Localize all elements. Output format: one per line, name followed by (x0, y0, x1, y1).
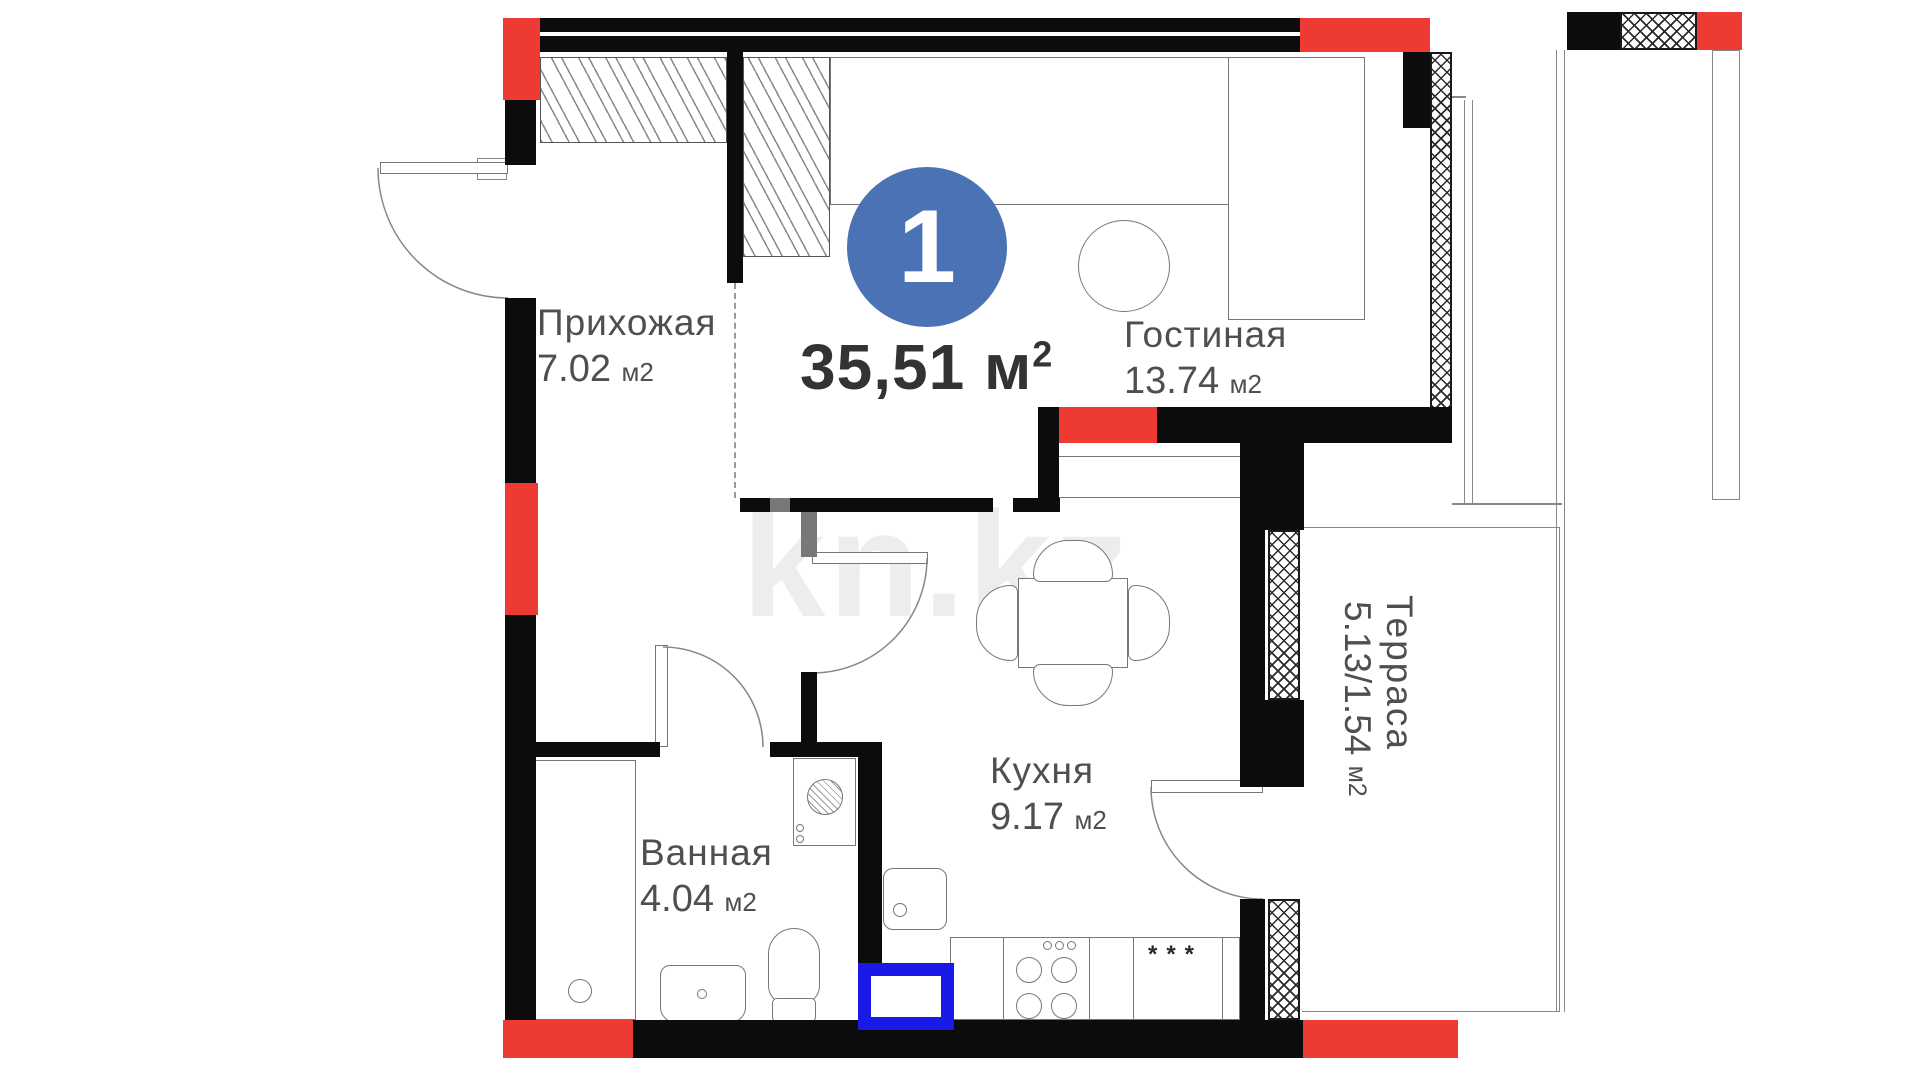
load-bearing-wall-red (503, 18, 540, 100)
window-hatch (1268, 530, 1300, 700)
room-label-bathroom: Ванная 4.04 м2 (640, 830, 773, 924)
load-bearing-wall-red (1059, 407, 1157, 443)
door-arc-terrace (1151, 787, 1263, 899)
wall-segment (505, 18, 1300, 32)
wall-segment (1403, 407, 1452, 443)
wall-segment (505, 298, 536, 483)
door-arc-bathroom (663, 647, 763, 747)
load-bearing-wall-red (503, 1020, 633, 1058)
door-arc-kitchen (812, 558, 927, 673)
wall-segment (540, 36, 1300, 52)
wall-segment (535, 742, 660, 757)
total-area: 35,51 м2 (800, 330, 1053, 404)
wall-segment-gray (770, 498, 790, 512)
apartment-number-badge: 1 (847, 167, 1007, 327)
door-arc-entry (378, 168, 508, 298)
load-bearing-wall-red (1697, 12, 1742, 50)
wall-segment (1567, 12, 1620, 50)
wall-segment (505, 100, 536, 165)
wall-segment (633, 1020, 1303, 1058)
room-label-terrace: Терраса 5.13/1.54 м2 (1336, 595, 1420, 925)
load-bearing-wall-red (1300, 18, 1430, 52)
wall-segment (727, 52, 743, 283)
wall-segment-gray (801, 512, 817, 557)
kitchen-sink-highlight (858, 963, 954, 1030)
wall-segment (1013, 498, 1060, 512)
load-bearing-wall-red (1303, 1020, 1458, 1058)
total-area-unit: м (984, 331, 1032, 403)
wall-segment (1240, 443, 1304, 530)
door-arcs (0, 0, 1920, 1080)
room-label-kitchen: Кухня 9.17 м2 (990, 748, 1107, 842)
wall-segment (1240, 700, 1304, 787)
wall-segment (1403, 52, 1430, 128)
wall-segment (1240, 899, 1265, 1020)
wall-segment (505, 615, 536, 1020)
wall-segment (1038, 407, 1059, 512)
load-bearing-wall-red (505, 483, 538, 615)
floor-plan-canvas: kn.kz (0, 0, 1920, 1080)
wall-segment (801, 672, 817, 742)
window-hatch (1620, 12, 1697, 50)
wall-segment (1240, 530, 1265, 700)
total-area-exponent: 2 (1032, 334, 1053, 375)
room-label-hallway: Прихожая 7.02 м2 (537, 300, 716, 394)
total-area-value: 35,51 (800, 331, 965, 403)
room-label-living: Гостиная 13.74 м2 (1124, 312, 1287, 406)
window-hatch (1430, 52, 1452, 443)
window-hatch (1268, 899, 1300, 1020)
wall-segment (1157, 407, 1403, 443)
